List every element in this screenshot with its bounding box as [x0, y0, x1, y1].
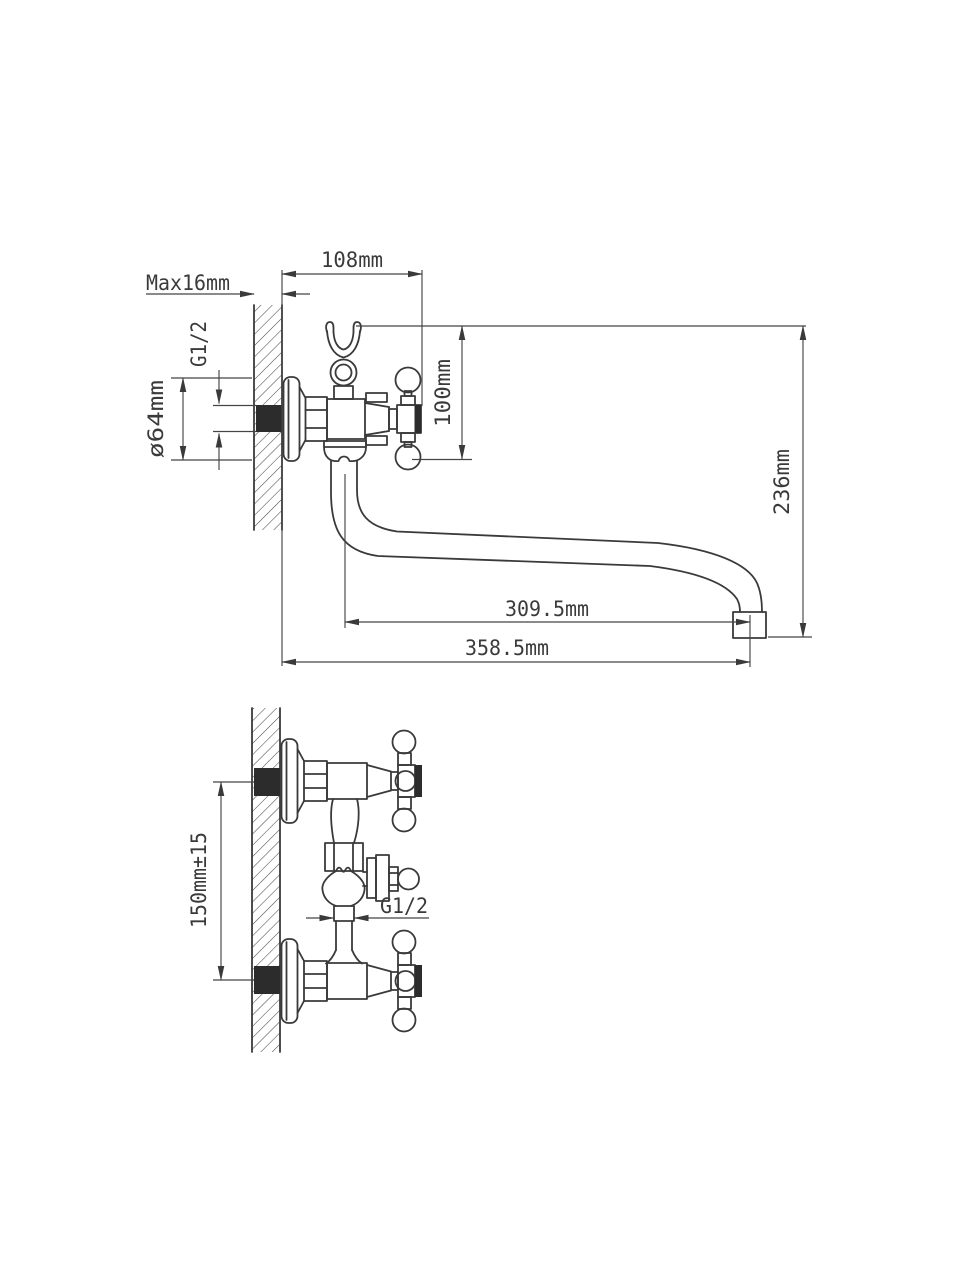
- valve-body-upper: [327, 763, 367, 799]
- escutcheon-lower: [282, 939, 298, 1023]
- inlet-pipe-section-cold: [254, 966, 280, 994]
- fork-ring-inner: [336, 365, 352, 381]
- hex-nut: [306, 397, 328, 441]
- handle-hub-dark-upper: [415, 765, 422, 797]
- valve-unit-upper: [282, 731, 423, 832]
- dim-label-max16mm: Max16mm: [146, 271, 230, 295]
- fork-ring-outer: [331, 360, 357, 386]
- wall-section-plan: [252, 708, 280, 1052]
- inlet-pipe-section-hot: [254, 768, 280, 796]
- dim-flange-diameter: ø64mm: [144, 378, 252, 460]
- valve-body-lower: [327, 963, 367, 999]
- shower-holder-fork: [326, 322, 361, 399]
- dim-label-g12-plan: G1/2: [380, 894, 428, 918]
- diverter-knob: [398, 869, 419, 890]
- dim-inlet-spacing: 150mm±15: [187, 782, 254, 980]
- mixer-body: [327, 399, 365, 439]
- diverter-disc-1: [367, 858, 376, 898]
- dim-body-height: 100mm: [412, 326, 472, 460]
- faucet-technical-drawing: 108mm Max16mm G1/2 ø64mm: [0, 0, 960, 1280]
- handle-ball-upper-2: [393, 809, 416, 832]
- hex-nut-upper: [304, 761, 327, 801]
- dim-label-309-5mm: 309.5mm: [505, 597, 589, 621]
- wall-section: [254, 305, 282, 530]
- spout-thread-band: [334, 906, 354, 921]
- hex-nut-lower: [304, 961, 327, 1001]
- dim-overall-height: 236mm: [768, 326, 812, 637]
- wall-hatch-plan: [252, 708, 280, 1052]
- inlet-pipe-section: [256, 405, 282, 432]
- dim-wall-thickness: Max16mm: [146, 271, 310, 295]
- dim-label-100mm: 100mm: [431, 359, 455, 427]
- handle-ball-lower-1: [393, 931, 416, 954]
- handle-ball-lower-2: [393, 1009, 416, 1032]
- dim-overall-reach: 358.5mm: [282, 636, 750, 662]
- dim-inlet-thread: G1/2: [187, 321, 256, 470]
- side-view-dimensions: 108mm Max16mm G1/2 ø64mm: [144, 248, 812, 667]
- valve-and-handle-side: [365, 368, 421, 470]
- dim-label-150mm: 150mm±15: [187, 832, 211, 928]
- escutcheon-upper: [282, 739, 298, 823]
- plan-view-dimensions: 150mm±15 G1/2: [187, 782, 429, 980]
- handle-ball-top: [396, 368, 421, 393]
- wall-escutcheon: [284, 377, 300, 461]
- dim-label-108mm: 108mm: [321, 248, 383, 272]
- side-view: 108mm Max16mm G1/2 ø64mm: [144, 248, 812, 667]
- handle-hub-upper: [398, 765, 415, 797]
- spout-locknut: [324, 441, 366, 447]
- handle-ball-upper-1: [393, 731, 416, 754]
- dim-label-g12-side: G1/2: [187, 321, 211, 367]
- dim-label-358-5mm: 358.5mm: [465, 636, 549, 660]
- handle-hub-dark-face: [415, 405, 422, 433]
- plan-view: 150mm±15 G1/2: [187, 708, 429, 1052]
- dim-label-236mm: 236mm: [770, 449, 794, 515]
- spout-collar: [325, 843, 363, 871]
- drawing-sheet: 108mm Max16mm G1/2 ø64mm: [0, 0, 960, 1280]
- spout-column-plan: [322, 799, 419, 964]
- handle-hub-dark-lower: [415, 965, 422, 997]
- handle-ball-bottom: [396, 445, 421, 470]
- handle-hub-lower: [398, 965, 415, 997]
- dim-label-64mm: ø64mm: [144, 380, 168, 458]
